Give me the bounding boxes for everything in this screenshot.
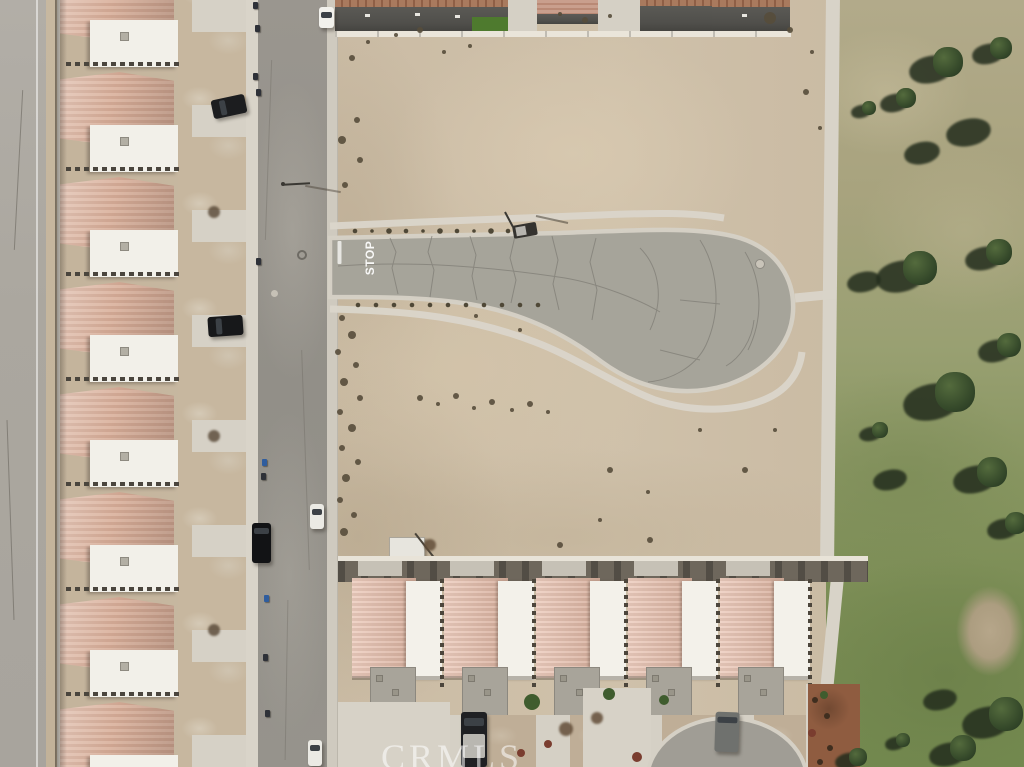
desert-shrub — [527, 401, 533, 407]
tree — [986, 239, 1012, 265]
white-flat-roof — [682, 581, 718, 680]
curb-shrub — [536, 303, 541, 308]
yard-tree — [208, 206, 220, 218]
manhole-cover — [756, 260, 765, 269]
vehicle-windshield — [717, 717, 737, 724]
ac-unit — [760, 689, 767, 696]
backyard-patio — [542, 561, 586, 576]
recycle-bin — [262, 459, 267, 466]
curb-shrub — [455, 229, 460, 234]
desert-shrub — [417, 27, 423, 33]
top-house-tile-ridge — [335, 0, 508, 7]
stop-road-marking: STOP — [363, 241, 377, 275]
desert-shrub — [546, 410, 550, 414]
house-shadow — [55, 0, 67, 67]
driveway — [192, 525, 250, 557]
yard-plant — [632, 752, 642, 762]
streetlight-head — [281, 182, 285, 186]
desert-shrub — [394, 33, 398, 37]
yard-tree — [208, 430, 220, 442]
driveway — [192, 630, 250, 662]
curb-shrub — [518, 303, 523, 308]
ac-unit — [120, 347, 129, 356]
house-shadow — [55, 277, 67, 382]
desert-shrub — [773, 428, 777, 432]
yard-plant — [824, 713, 830, 719]
desert-shrub — [335, 349, 341, 355]
desert-shrub — [803, 89, 809, 95]
tree — [862, 101, 876, 115]
top-house-tile-ridge — [640, 0, 712, 6]
fence-shadow — [808, 579, 812, 691]
gray-car-cul-de-sac — [714, 712, 739, 753]
curb-shrub — [437, 228, 443, 234]
left-road — [0, 0, 46, 767]
top-house-gap — [508, 0, 537, 31]
roof-vent — [415, 13, 420, 16]
curb-shrub — [404, 229, 409, 234]
white-flat-roof — [590, 581, 626, 680]
desert-shrub — [598, 518, 602, 522]
white-flat-roof — [90, 755, 178, 767]
house-shadow — [55, 382, 67, 487]
desert-shrub — [339, 315, 345, 321]
white-flat-roof — [774, 581, 810, 680]
white-flat-roof — [90, 125, 178, 172]
grass-dirt-patch — [956, 586, 1024, 676]
trash-bin — [263, 654, 268, 661]
top-house-roof — [712, 5, 790, 31]
driveway — [192, 735, 250, 767]
desert-shrub — [337, 497, 343, 503]
desert-shrub — [340, 528, 348, 536]
curb-shrub — [464, 303, 469, 308]
tree — [872, 422, 888, 438]
desert-shrub — [518, 328, 522, 332]
ac-unit — [120, 137, 129, 146]
yard-plant — [659, 695, 669, 705]
driveway — [192, 0, 250, 32]
tree — [903, 251, 937, 285]
ac-unit — [392, 689, 399, 696]
white-flat-roof — [90, 440, 178, 487]
desert-shrub — [355, 459, 361, 465]
white-car-top-street — [319, 7, 334, 28]
desert-shrub — [453, 393, 459, 399]
desert-shrub — [357, 395, 363, 401]
curb-shrub — [392, 303, 397, 308]
tree — [935, 372, 975, 412]
ac-unit — [484, 689, 491, 696]
tree — [849, 748, 867, 766]
top-house-tile-ridge — [712, 0, 790, 7]
desert-shrub — [342, 474, 350, 482]
fence-shadow — [66, 692, 182, 696]
black-car-driveway-middle — [207, 315, 243, 337]
curb-shrub — [353, 229, 358, 234]
fence-shadow — [66, 62, 182, 66]
white-flat-roof — [498, 581, 534, 680]
roof-vent — [455, 15, 460, 18]
desert-shrub — [349, 55, 355, 61]
trash-bin — [265, 710, 270, 717]
vehicle-windshield — [219, 100, 228, 116]
driveway — [192, 210, 250, 242]
trash-bin — [253, 2, 258, 9]
curb-shrub — [410, 303, 415, 308]
backyard-patio — [358, 561, 402, 576]
top-house-gap — [598, 0, 640, 31]
vehicle-windshield — [310, 745, 320, 751]
house-shadow — [55, 67, 67, 172]
backyard-patio — [634, 561, 678, 576]
left-house-unit — [58, 0, 250, 67]
vehicle-windshield — [254, 528, 269, 534]
desert-shrub — [342, 182, 348, 188]
recycle-bin — [264, 595, 269, 602]
backyard-patio — [726, 561, 770, 576]
desert-shrub — [348, 331, 356, 339]
vehicle-windshield — [312, 509, 322, 515]
house-shadow — [55, 487, 67, 592]
curb-shrub — [488, 228, 494, 234]
yard-plant — [591, 712, 603, 724]
white-car-curb-lower — [308, 740, 322, 766]
ac-unit — [668, 689, 675, 696]
house-shadow — [55, 592, 67, 697]
yard-plant — [559, 722, 573, 736]
desert-shrub — [353, 362, 359, 368]
desert-shrub — [354, 117, 360, 123]
desert-shrub — [787, 27, 793, 33]
top-boundary-wall — [335, 31, 791, 37]
house-shadow — [55, 697, 67, 767]
roof-vent — [742, 14, 747, 17]
tree — [997, 333, 1021, 357]
desert-shrub — [348, 424, 356, 432]
aerial-photo: STOP CRMLS — [0, 0, 1024, 767]
tree — [989, 697, 1023, 731]
stop-bar — [338, 241, 342, 264]
yard-plant — [812, 697, 818, 703]
desert-shrub — [818, 126, 822, 130]
desert-shrub — [351, 512, 357, 518]
trash-bin — [255, 25, 260, 32]
desert-shrub — [810, 50, 814, 54]
curb-shrub — [472, 229, 476, 233]
yard-plant — [544, 740, 552, 748]
tree — [933, 47, 963, 77]
roof-vent — [365, 14, 370, 17]
mls-watermark: CRMLS — [381, 736, 523, 767]
yard-plant — [808, 729, 816, 737]
manhole-cover — [297, 250, 307, 260]
white-flat-roof — [406, 581, 442, 680]
desert-shrub — [647, 537, 653, 543]
desert-shrub — [646, 490, 650, 494]
tree — [896, 733, 910, 747]
curb-shrub — [370, 229, 374, 233]
desert-shrub — [417, 395, 423, 401]
trash-bin — [261, 473, 266, 480]
curb-shrub — [446, 303, 451, 308]
curb-shrub — [421, 229, 425, 233]
fence-shadow — [66, 482, 182, 486]
ac-unit — [560, 675, 567, 682]
ac-unit — [468, 675, 475, 682]
fence-shadow — [66, 272, 182, 276]
curb-shrub — [374, 303, 379, 308]
left-house-unit — [58, 697, 250, 767]
ac-unit — [120, 242, 129, 251]
desert-shrub — [340, 378, 348, 386]
fence-shadow — [66, 587, 182, 591]
desert-shrub — [472, 406, 476, 410]
house-shadow — [55, 172, 67, 277]
yard-plant — [424, 539, 436, 551]
backyard-patio — [450, 561, 494, 576]
trash-bin — [256, 89, 261, 96]
desert-shrub — [742, 467, 748, 473]
top-house-roof — [640, 4, 712, 31]
ac-unit — [576, 689, 583, 696]
white-flat-roof — [90, 335, 178, 382]
trash-bin — [256, 258, 261, 265]
desert-shrub — [338, 136, 346, 144]
desert-shrub — [468, 44, 472, 48]
yard-plant — [603, 688, 615, 700]
ac-unit — [120, 32, 129, 41]
tree — [990, 37, 1012, 59]
desert-shrub — [474, 314, 478, 318]
hedge — [472, 17, 508, 32]
trash-bin — [253, 73, 258, 80]
left-house-unit — [58, 382, 250, 487]
curb-shrub — [356, 303, 361, 308]
ac-unit — [120, 662, 129, 671]
desert-shrub — [698, 428, 702, 432]
desert-shrub — [557, 542, 563, 548]
curb-shrub — [500, 303, 505, 308]
curb-shrub — [428, 303, 433, 308]
desert-shrub — [366, 40, 370, 44]
curb-shrub — [386, 228, 392, 234]
top-house-eave — [537, 14, 598, 24]
white-flat-roof — [90, 20, 178, 67]
left-house-unit — [58, 487, 250, 592]
vehicle-windshield — [215, 318, 222, 334]
yard-plant — [820, 691, 828, 699]
left-house-unit — [58, 172, 250, 277]
desert-shrub — [442, 50, 446, 54]
sidewalk-street-left — [246, 0, 258, 767]
yard-plant — [827, 745, 833, 751]
cul-de-sac-road: STOP — [320, 195, 840, 425]
curb-shrub — [506, 229, 511, 234]
ac-unit — [120, 557, 129, 566]
tree — [896, 88, 916, 108]
fence-shadow — [66, 377, 182, 381]
desert-shrub — [339, 445, 345, 451]
white-flat-roof — [90, 230, 178, 277]
white-flat-roof — [90, 545, 178, 592]
tree — [950, 735, 976, 761]
ac-unit — [744, 675, 751, 682]
ac-unit — [376, 675, 383, 682]
yard-tree — [208, 624, 220, 636]
desert-shrub — [357, 157, 363, 163]
desert-shrub — [558, 12, 562, 16]
desert-shrub — [510, 408, 514, 412]
left-house-unit — [58, 592, 250, 697]
yard-plant — [524, 694, 540, 710]
curb-shrub — [482, 303, 487, 308]
vehicle-windshield — [321, 12, 332, 18]
black-suv-street — [252, 523, 271, 563]
desert-shrub — [337, 409, 343, 415]
fence-shadow — [66, 167, 182, 171]
ac-unit — [652, 675, 659, 682]
white-car-curb-upper — [310, 504, 324, 529]
desert-shrub — [608, 14, 612, 18]
desert-shrub — [764, 12, 776, 24]
manhole-cover — [271, 290, 278, 297]
left-house-unit — [58, 67, 250, 172]
desert-shrub — [489, 399, 495, 405]
driveway — [192, 420, 250, 452]
vehicle-windshield — [464, 718, 484, 726]
tree — [977, 457, 1007, 487]
tree — [1005, 512, 1024, 534]
white-flat-roof — [90, 650, 178, 697]
ac-unit — [120, 452, 129, 461]
desert-shrub — [582, 17, 588, 23]
left-road-edge-line — [36, 0, 38, 767]
desert-shrub — [436, 402, 440, 406]
desert-shrub — [607, 467, 613, 473]
yard-plant — [817, 759, 823, 765]
